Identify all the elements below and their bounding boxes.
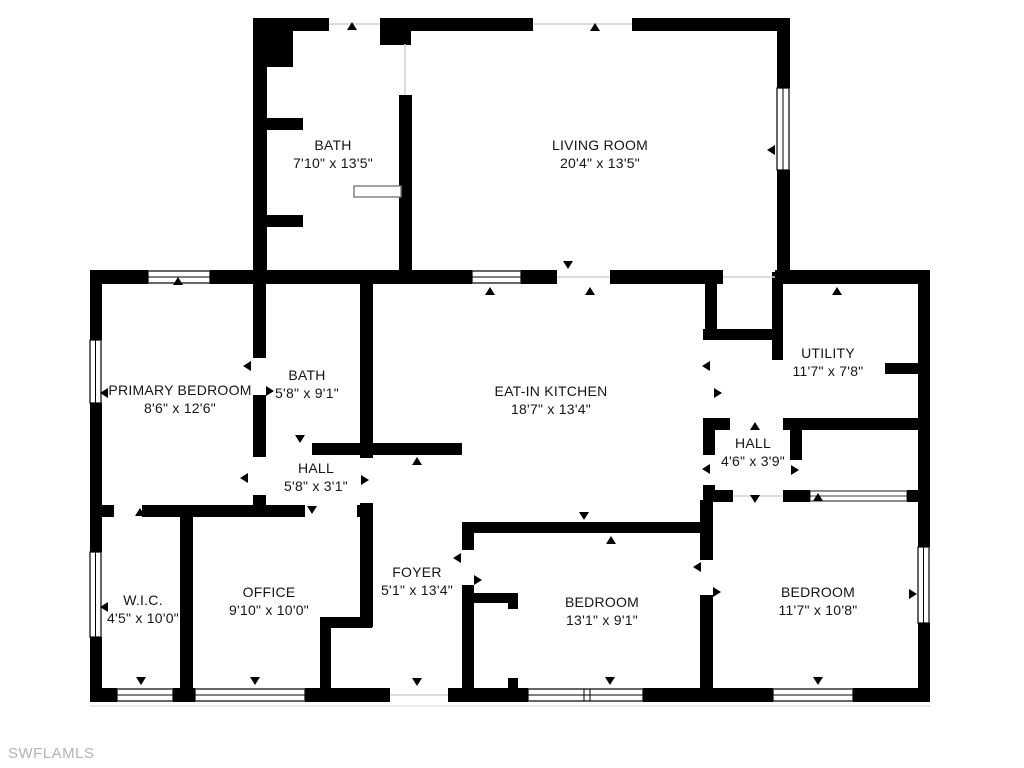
room-name: FOYER (381, 563, 453, 581)
room-label-eat-in-kitchen: EAT-IN KITCHEN 18'7" x 13'4" (495, 382, 608, 418)
window (918, 547, 929, 623)
room-name: LIVING ROOM (552, 136, 648, 154)
room-name: BATH (293, 136, 373, 154)
window (117, 689, 173, 701)
room-label-bath-middle: BATH 5'8" x 9'1" (275, 366, 339, 402)
room-dimensions: 4'6" x 3'9" (721, 452, 785, 470)
room-dimensions: 5'8" x 9'1" (275, 384, 339, 402)
door-leaf (354, 186, 401, 197)
room-dimensions: 7'10" x 13'5" (293, 154, 373, 172)
room-dimensions: 5'1" x 13'4" (381, 581, 453, 599)
room-dimensions: 11'7" x 7'8" (793, 362, 864, 380)
room-name: PRIMARY BEDROOM (108, 381, 251, 399)
room-name: BEDROOM (565, 593, 639, 611)
room-name: BEDROOM (779, 583, 858, 601)
room-name: EAT-IN KITCHEN (495, 382, 608, 400)
room-name: W.I.C. (107, 591, 179, 609)
room-dimensions: 9'10" x 10'0" (229, 601, 309, 619)
room-label-foyer: FOYER 5'1" x 13'4" (381, 563, 453, 599)
window (528, 689, 643, 701)
room-name: UTILITY (793, 344, 864, 362)
room-label-hall-middle: HALL 5'8" x 3'1" (284, 459, 348, 495)
room-dimensions: 20'4" x 13'5" (552, 154, 648, 172)
room-label-office: OFFICE 9'10" x 10'0" (229, 583, 309, 619)
room-dimensions: 18'7" x 13'4" (495, 400, 608, 418)
room-dimensions: 11'7" x 10'8" (779, 601, 858, 619)
window (90, 552, 101, 637)
room-name: BATH (275, 366, 339, 384)
room-label-bedroom-right: BEDROOM 11'7" x 10'8" (779, 583, 858, 619)
room-name: HALL (284, 459, 348, 477)
room-dimensions: 13'1" x 9'1" (565, 611, 639, 629)
room-label-bedroom-center: BEDROOM 13'1" x 9'1" (565, 593, 639, 629)
window (472, 271, 521, 283)
window (773, 689, 853, 701)
room-name: HALL (721, 434, 785, 452)
floorplan: BATH 7'10" x 13'5" LIVING ROOM 20'4" x 1… (0, 0, 1024, 768)
wardrobe-front (810, 491, 907, 501)
watermark: SWFLAMLS (8, 745, 95, 762)
room-dimensions: 5'8" x 3'1" (284, 477, 348, 495)
window (195, 689, 305, 701)
room-label-bath-upper: BATH 7'10" x 13'5" (293, 136, 373, 172)
room-name: OFFICE (229, 583, 309, 601)
window (777, 88, 789, 170)
window (90, 340, 101, 403)
room-label-primary-bedroom: PRIMARY BEDROOM 8'6" x 12'6" (108, 381, 251, 417)
room-label-wic: W.I.C. 4'5" x 10'0" (107, 591, 179, 627)
room-label-living-room: LIVING ROOM 20'4" x 13'5" (552, 136, 648, 172)
room-dimensions: 8'6" x 12'6" (108, 399, 251, 417)
room-dimensions: 4'5" x 10'0" (107, 609, 179, 627)
room-label-utility: UTILITY 11'7" x 7'8" (793, 344, 864, 380)
room-label-hall-right: HALL 4'6" x 3'9" (721, 434, 785, 470)
